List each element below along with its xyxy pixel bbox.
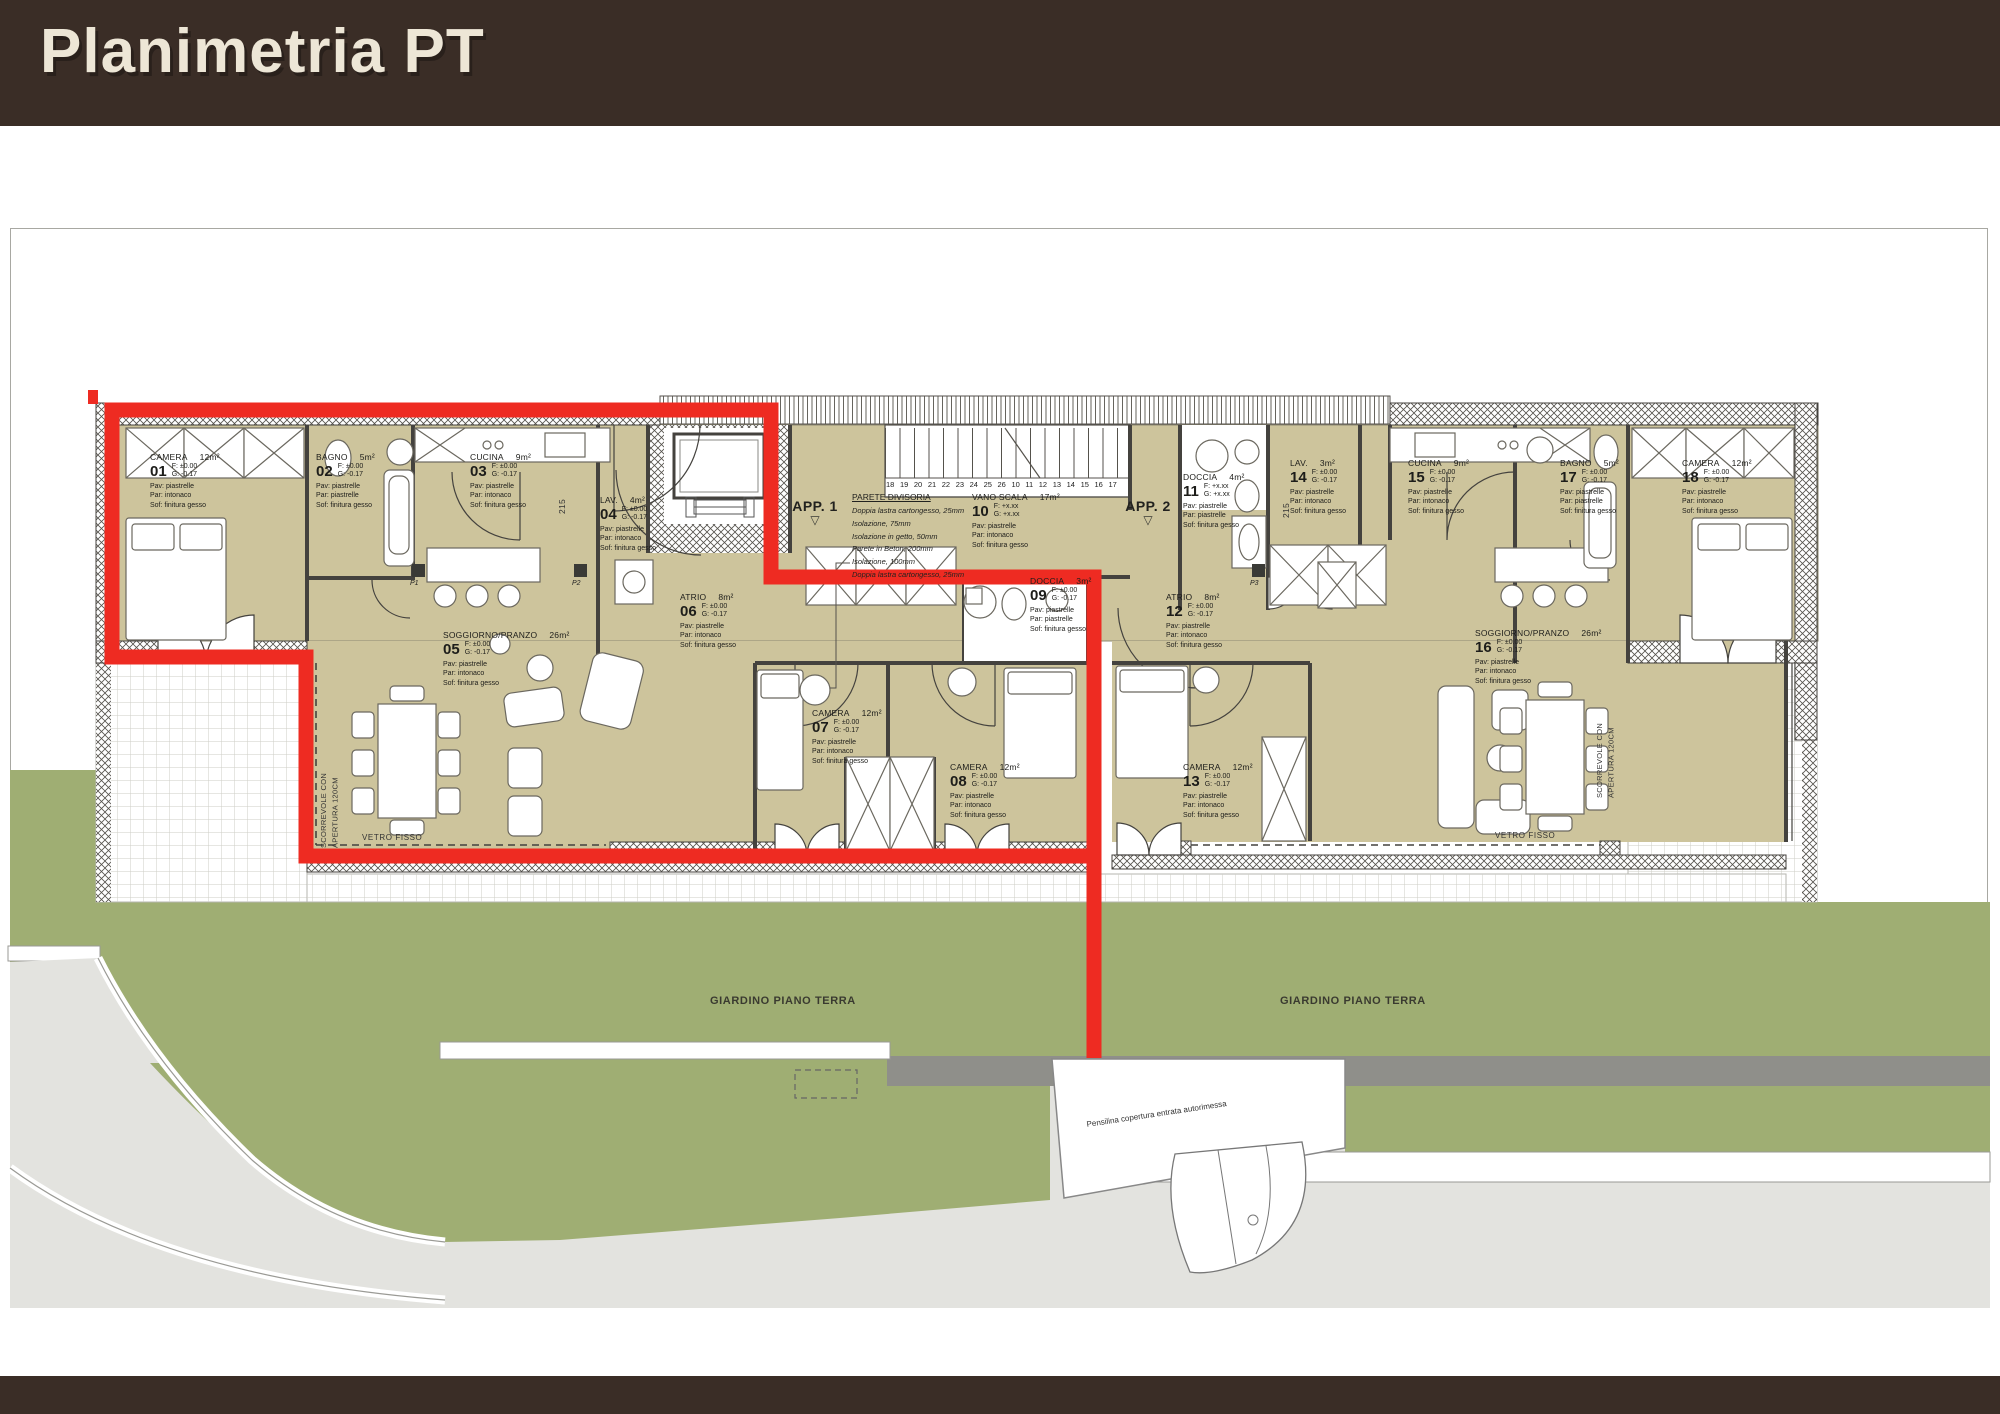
room-label-05: SOGGIORNO/PRANZO26m²05F: ±0.00G: -0.17Pa…	[443, 630, 570, 688]
stair-step-number: 10	[1011, 480, 1019, 489]
stair-width-dim-left: 215	[556, 474, 569, 514]
stair-step-number: 25	[984, 480, 992, 489]
pillar-label-p1: P1	[410, 580, 419, 587]
room-label-16: SOGGIORNO/PRANZO26m²16F: ±0.00G: -0.17Pa…	[1475, 628, 1602, 686]
apartment-1-marker: APP. 1 ▽	[780, 498, 850, 526]
stair-step-number: 24	[970, 480, 978, 489]
stair-width-dim-right: 215	[1280, 478, 1293, 518]
garden-label-right: GIARDINO PIANO TERRA	[1280, 995, 1426, 1007]
room-label-12: ATRIO8m²12F: ±0.00G: -0.17Pav: piastrell…	[1166, 592, 1222, 650]
stair-step-number: 21	[928, 480, 936, 489]
stair-step-number: 11	[1025, 480, 1033, 489]
wall-note-line: Parete in Beton, 200mm	[852, 543, 964, 556]
fixed-glass-note-right: VETRO FISSO	[1495, 831, 1555, 840]
room-label-07: CAMERA12m²07F: ±0.00G: -0.17Pav: piastre…	[812, 708, 882, 766]
floor-plan-page: { "header": { "title": "Planimetria PT" …	[0, 0, 2000, 1414]
room-label-11: DOCCIA4m²11F: +x.xxG: +x.xxPav: piastrel…	[1183, 472, 1245, 530]
garden-label-left: GIARDINO PIANO TERRA	[710, 995, 856, 1007]
room-label-13: CAMERA12m²13F: ±0.00G: -0.17Pav: piastre…	[1183, 762, 1253, 820]
down-triangle-icon: ▽	[780, 516, 850, 526]
floor-plan-drawing	[0, 0, 2000, 1414]
room-label-18: CAMERA12m²18F: ±0.00G: -0.17Pav: piastre…	[1682, 458, 1752, 516]
pillar-label-p3: P3	[1250, 580, 1259, 587]
room-label-15: CUCINA9m²15F: ±0.00G: -0.17Pav: piastrel…	[1408, 458, 1469, 516]
dividing-wall-note: PARETE DIVISORIA Doppia lastra cartonges…	[852, 492, 964, 582]
stair-step-numbers: 1819202122232425261011121314151617	[886, 480, 1117, 489]
room-label-08: CAMERA12m²08F: ±0.00G: -0.17Pav: piastre…	[950, 762, 1020, 820]
wall-note-line: Doppia lastra cartongesso, 25mm	[852, 569, 964, 582]
down-triangle-icon: ▽	[1113, 516, 1183, 526]
wall-note-line: Doppia lastra cartongesso, 25mm	[852, 505, 964, 518]
sliding-door-note-right: SCORREVOLE CON APERTURA 120CM	[1594, 698, 1617, 798]
room-label-10: VANO SCALA17m²10F: +x.xxG: +x.xxPav: pia…	[972, 492, 1060, 550]
room-label-17: BAGNO5m²17F: ±0.00G: -0.17Pav: piastrell…	[1560, 458, 1619, 516]
stair-step-number: 19	[900, 480, 908, 489]
room-label-01: CAMERA12m²01F: ±0.00G: -0.17Pav: piastre…	[150, 452, 220, 510]
stair-step-number: 17	[1108, 480, 1116, 489]
room-label-14: LAV.3m²14F: ±0.00G: -0.17Pav: piastrelle…	[1290, 458, 1346, 516]
room-label-03: CUCINA9m²03F: ±0.00G: -0.17Pav: piastrel…	[470, 452, 531, 510]
room-label-04: LAV.4m²04F: ±0.00G: -0.17Pav: piastrelle…	[600, 495, 656, 553]
room-label-06: ATRIO8m²06F: ±0.00G: -0.17Pav: piastrell…	[680, 592, 736, 650]
pillar-label-p2: P2	[572, 580, 581, 587]
stair-step-number: 22	[942, 480, 950, 489]
stair-step-number: 12	[1039, 480, 1047, 489]
wall-note-line: Isolazione in getto, 50mm	[852, 531, 964, 544]
stair-step-number: 13	[1053, 480, 1061, 489]
stair-step-number: 16	[1095, 480, 1103, 489]
apartment-2-marker: APP. 2 ▽	[1113, 498, 1183, 526]
room-label-09: DOCCIA3m²09F: ±0.00G: -0.17Pav: piastrel…	[1030, 576, 1092, 634]
stair-step-number: 15	[1081, 480, 1089, 489]
room-label-02: BAGNO5m²02F: ±0.00G: -0.17Pav: piastrell…	[316, 452, 375, 510]
wall-note-line: Isolazione, 100mm	[852, 556, 964, 569]
fixed-glass-note-left: VETRO FISSO	[362, 833, 422, 842]
sliding-door-note-left: SCORREVOLE CON APERTURA 120CM	[318, 748, 341, 848]
stair-step-number: 26	[998, 480, 1006, 489]
stair-step-number: 18	[886, 480, 894, 489]
wall-note-line: Isolazione, 75mm	[852, 518, 964, 531]
stair-step-number: 23	[956, 480, 964, 489]
stair-step-number: 14	[1067, 480, 1075, 489]
stair-step-number: 20	[914, 480, 922, 489]
